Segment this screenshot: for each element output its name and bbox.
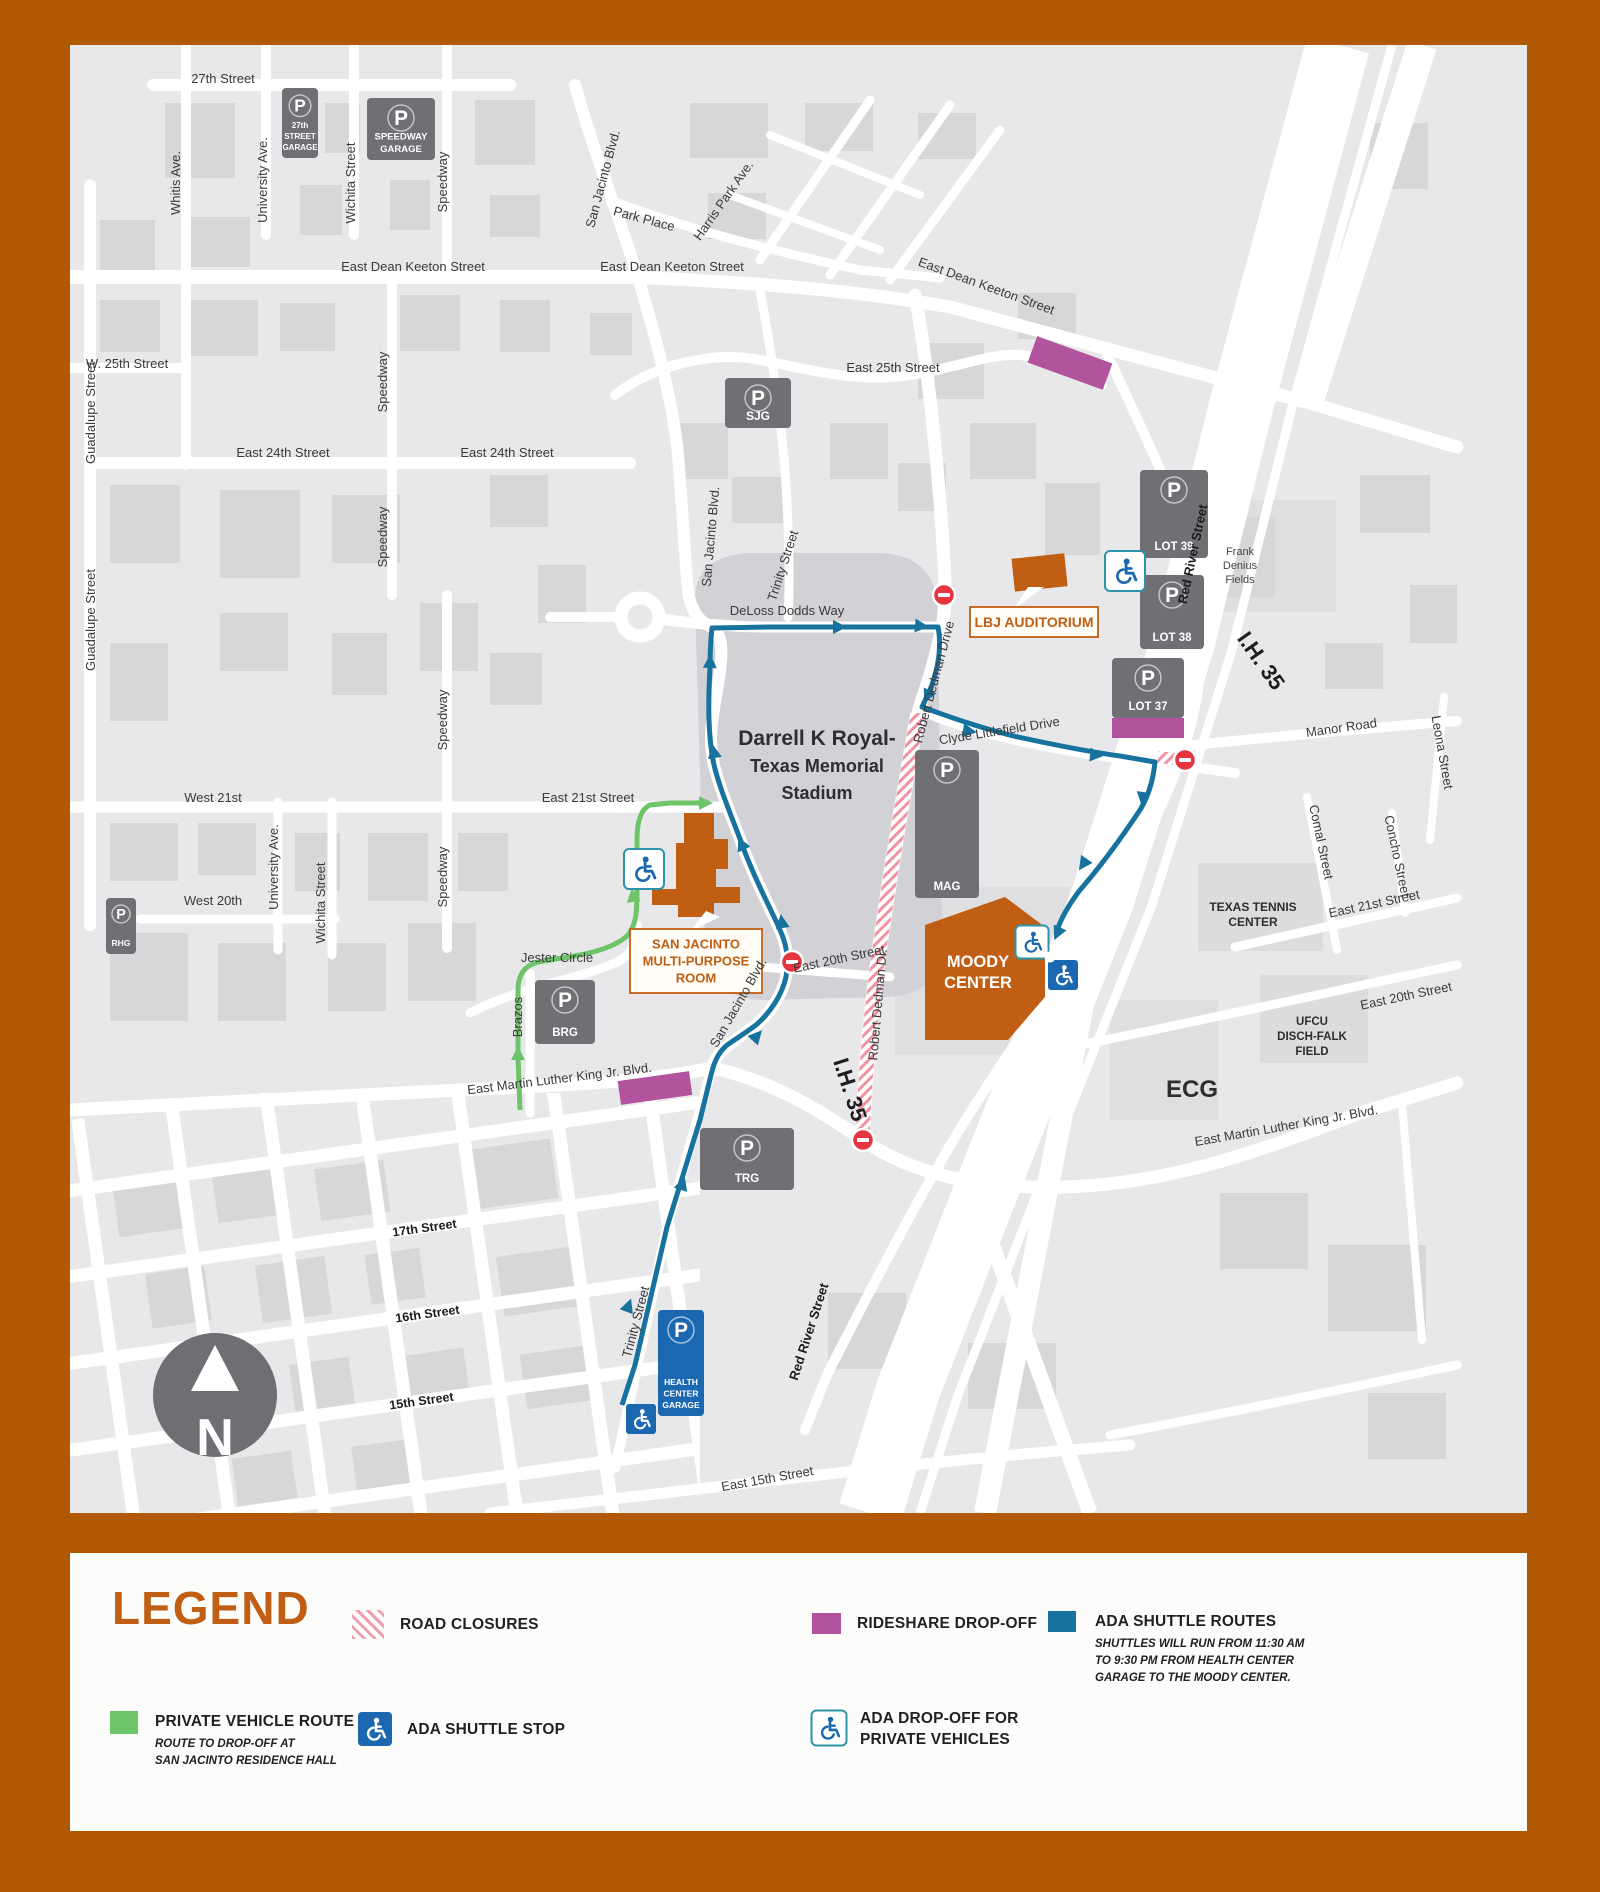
legend-label: PRIVATE VEHICLES — [860, 1729, 1100, 1750]
street-label: Whitis Ave. — [168, 151, 183, 215]
street-label: University Ave. — [255, 137, 270, 223]
garage-label: SJG — [746, 409, 770, 423]
place-label: FIELD — [1295, 1046, 1328, 1058]
legend-note-line: SHUTTLES WILL RUN FROM 11:30 AM — [1095, 1636, 1395, 1653]
road-closures-swatch — [352, 1610, 384, 1639]
street-label: Speedway — [375, 351, 390, 412]
legend-label: ADA DROP-OFF FOR — [860, 1708, 1100, 1729]
ada-dropoff-icon — [1016, 926, 1049, 959]
callout-lbj-auditorium: LBJ AUDITORIUM — [970, 607, 1098, 637]
legend-label: ADA SHUTTLE STOP — [407, 1719, 627, 1740]
street-label: Wichita Street — [313, 862, 328, 943]
street-label: East Dean Keeton Street — [341, 259, 485, 274]
lbj-auditorium-building — [1011, 553, 1067, 591]
rideshare-swatch — [812, 1613, 841, 1634]
place-label: CENTER — [944, 974, 1012, 992]
street-label: Jester Circle — [521, 950, 593, 965]
parking-garage-brg: PBRG — [535, 980, 595, 1044]
street-label: Guadalupe Street — [83, 569, 98, 671]
garage-label: MAG — [934, 881, 961, 893]
legend-title: LEGEND — [112, 1581, 310, 1635]
garage-label: HEALTH — [664, 1377, 698, 1387]
place-label: Fields — [1225, 574, 1255, 586]
street-label: DeLoss Dodds Way — [730, 603, 845, 618]
parking-garage-mag: PMAG — [915, 750, 979, 898]
ada-shuttle-stop-icon — [357, 1711, 393, 1747]
parking-icon: P — [674, 1319, 688, 1342]
callout-label: SAN JACINTO — [652, 937, 740, 952]
legend-item-ada-dropoff: ADA DROP-OFF FOR PRIVATE VEHICLES — [810, 1709, 848, 1752]
compass-letter: N — [196, 1409, 234, 1467]
street-label: East Dean Keeton Street — [600, 259, 744, 274]
place-label: Denius — [1223, 560, 1258, 572]
parking-icon: P — [294, 96, 306, 116]
parking-garage-27th-street-garage: P27thSTREETGARAGE — [282, 88, 318, 158]
callout-label: ROOM — [676, 971, 716, 986]
street-label: East 24th Street — [460, 445, 554, 460]
street-label: 27th Street — [191, 71, 255, 86]
legend-item-ada-stop: ADA SHUTTLE STOP — [357, 1711, 393, 1752]
place-label: Darrell K Royal- — [738, 727, 896, 750]
garage-label: STREET — [284, 132, 316, 141]
ada-dropoff-icon — [810, 1709, 848, 1747]
garage-label: LOT 38 — [1153, 632, 1193, 644]
garage-label: RHG — [112, 938, 131, 948]
parking-garage-speedway-garage: PSPEEDWAYGARAGE — [367, 98, 435, 160]
private-vehicle-swatch — [110, 1711, 138, 1734]
no-entry-icon — [1174, 749, 1196, 771]
no-entry-icon — [933, 584, 955, 606]
street-label: West 20th — [184, 893, 242, 908]
garage-label: GARAGE — [380, 144, 422, 155]
ada-shuttle-stop-icon — [1048, 960, 1078, 990]
street-label: Guadalupe Street — [83, 362, 98, 464]
street-label: West 21st — [184, 790, 242, 805]
ada-routes-swatch — [1048, 1611, 1076, 1632]
garage-label: 27th — [292, 121, 309, 130]
garage-label: BRG — [552, 1027, 578, 1039]
garage-label: LOT 37 — [1129, 701, 1168, 713]
place-label: TEXAS TENNIS — [1209, 900, 1296, 914]
legend-label: ROAD CLOSURES — [400, 1614, 600, 1635]
legend-label: ADA SHUTTLE ROUTES — [1095, 1611, 1395, 1632]
place-label: Stadium — [781, 783, 852, 803]
parking-icon: P — [558, 989, 572, 1012]
street-label: Speedway — [435, 151, 450, 212]
street-label: East 24th Street — [236, 445, 330, 460]
legend-note-line: GARAGE TO THE MOODY CENTER. — [1095, 1670, 1395, 1687]
parking-icon: P — [1167, 479, 1181, 502]
no-entry-icon — [852, 1129, 874, 1151]
garage-label: GARAGE — [282, 143, 318, 152]
place-label: ECG — [1166, 1076, 1218, 1103]
shuttle-stop-dot — [1045, 952, 1056, 963]
campus-map-svg: P27thSTREETGARAGEPSPEEDWAYGARAGEPSJGPLOT… — [70, 45, 1527, 1513]
parking-garage-sjg: PSJG — [725, 378, 791, 428]
parking-garage-trg: PTRG — [700, 1128, 794, 1190]
place-label: UFCU — [1296, 1016, 1328, 1028]
parking-garage-health-center-garage: PHEALTHCENTERGARAGE — [658, 1310, 704, 1416]
place-label: MOODY — [947, 953, 1009, 971]
rideshare-dropoff-zone — [1112, 718, 1184, 738]
legend-note-line: TO 9:30 PM FROM HEALTH CENTER — [1095, 1653, 1395, 1670]
ada-dropoff-icon — [624, 849, 664, 889]
place-label: Texas Memorial — [750, 756, 884, 776]
parking-icon: P — [1141, 667, 1155, 690]
parking-icon: P — [751, 387, 765, 410]
garage-label: CENTER — [664, 1389, 699, 1399]
legend-panel: LEGEND ROAD CLOSURES RIDESHARE DROP-OFF … — [70, 1553, 1527, 1831]
place-label: DISCH-FALK — [1277, 1031, 1347, 1043]
street-label: Brazos — [510, 996, 525, 1037]
street-label: East 21st Street — [542, 790, 635, 805]
parking-icon: P — [394, 107, 408, 130]
place-label: CENTER — [1228, 915, 1278, 929]
garage-label: GARAGE — [662, 1400, 700, 1410]
parking-icon: P — [116, 907, 126, 923]
street-label: Speedway — [375, 506, 390, 567]
parking-icon: P — [740, 1137, 754, 1160]
street-label: W. 25th Street — [86, 356, 169, 371]
street-label: Wichita Street — [343, 142, 358, 223]
parking-garage-rhg: PRHG — [106, 898, 136, 954]
legend-note-line: SAN JACINTO RESIDENCE HALL — [155, 1753, 455, 1770]
ada-dropoff-icon — [1105, 551, 1145, 591]
callout-label: MULTI-PURPOSE — [643, 954, 750, 969]
campus-map: P27thSTREETGARAGEPSPEEDWAYGARAGEPSJGPLOT… — [70, 45, 1527, 1513]
parking-garage-lot 37: PLOT 37 — [1112, 658, 1184, 718]
street-label: Speedway — [435, 689, 450, 750]
street-label: East 25th Street — [846, 360, 940, 375]
ada-shuttle-stop-icon — [626, 1404, 656, 1434]
street-label: University Ave. — [266, 824, 281, 910]
parking-icon: P — [940, 759, 954, 782]
garage-label: TRG — [735, 1173, 759, 1185]
garage-label: SPEEDWAY — [375, 132, 429, 143]
event-map-page: { "colors":{ "frame":"#b05802", "map_bg"… — [0, 0, 1600, 1892]
place-label: Frank — [1226, 546, 1255, 558]
street-label: Speedway — [435, 846, 450, 907]
callout-label: LBJ AUDITORIUM — [975, 614, 1094, 630]
parking-garage-lot 38: PLOT 38 — [1140, 575, 1204, 649]
